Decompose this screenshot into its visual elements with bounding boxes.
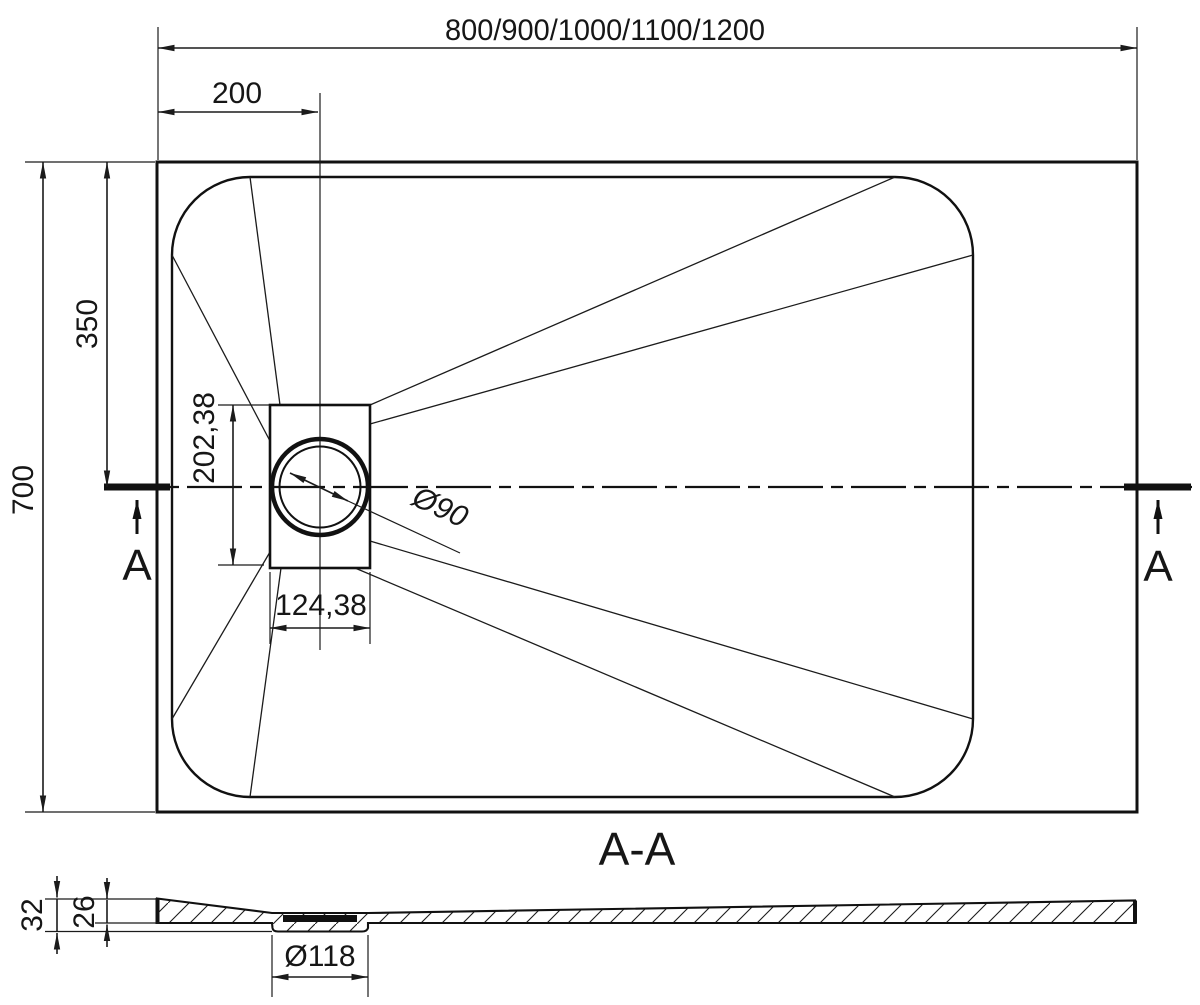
- slope-line: [355, 568, 895, 797]
- dim-overall-width: 800/900/1000/1100/1200: [158, 14, 1137, 160]
- section-marker-right-label: A: [1143, 542, 1173, 591]
- dim-drain-diameter: Ø90: [290, 473, 473, 553]
- slope-line: [370, 177, 895, 405]
- dim-overall-height-label: 32: [16, 898, 49, 931]
- dim-drain-diameter-label: Ø90: [406, 480, 473, 534]
- dim-cutout-width-label: 124,38: [275, 589, 367, 622]
- slope-line: [370, 255, 973, 424]
- dim-drain-offset-y-label: 350: [71, 299, 104, 349]
- dim-tray-depth-label: 700: [7, 465, 40, 515]
- technical-drawing-canvas: A A Ø90 800/900/1000/1100/1200 200: [0, 0, 1200, 1005]
- section-view: A-A 32 26 Ø118: [16, 823, 1136, 997]
- dim-recess-diameter-label: Ø118: [284, 940, 355, 973]
- slope-line: [172, 255, 270, 441]
- shower-tray-technical-drawing: A A Ø90 800/900/1000/1100/1200 200: [0, 0, 1200, 1005]
- drain-section-band: [283, 915, 357, 922]
- slope-line: [370, 541, 973, 719]
- dim-overall-width-label: 800/900/1000/1100/1200: [445, 14, 765, 47]
- dim-base-thickness: 26: [68, 878, 160, 947]
- slope-line: [172, 552, 270, 719]
- dim-recess-diameter: Ø118: [272, 935, 368, 997]
- dim-drain-offset-y: 350: [71, 162, 107, 487]
- slope-line: [250, 177, 280, 405]
- dim-drain-offset-x-label: 200: [212, 77, 262, 110]
- section-title: A-A: [599, 823, 676, 875]
- dim-base-thickness-label: 26: [68, 895, 101, 928]
- section-cut-line: A A: [104, 487, 1192, 591]
- section-marker-left-label: A: [122, 541, 152, 590]
- dim-cutout-height-label: 202,38: [188, 392, 221, 484]
- top-view: A A Ø90 800/900/1000/1100/1200 200: [7, 14, 1192, 812]
- dim-drain-offset-x: 200: [158, 77, 318, 112]
